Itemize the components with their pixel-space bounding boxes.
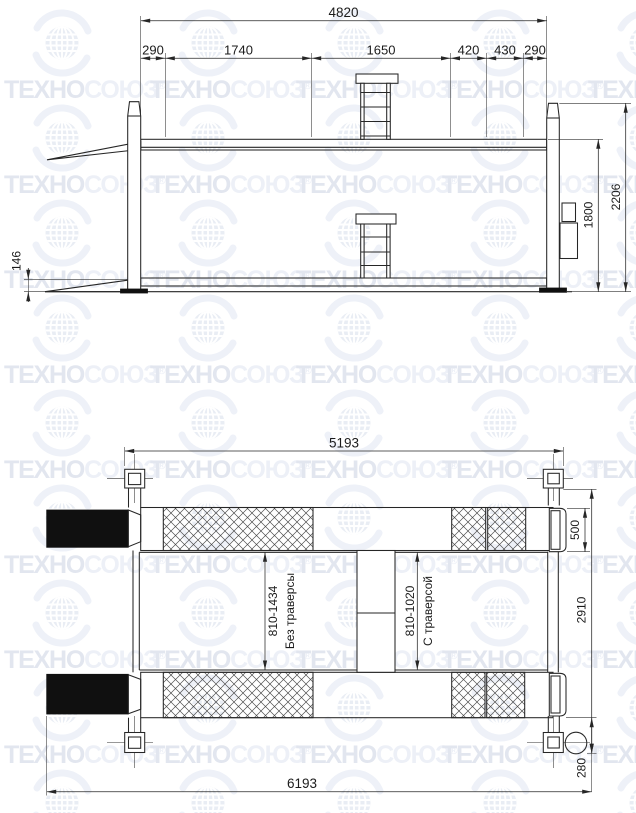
dim-label-overall-height: 2206 <box>609 183 623 210</box>
watermark-brand-text: ТЕХНОСОЮЗ® <box>588 741 636 769</box>
watermark-globe <box>36 203 88 263</box>
watermark-globe <box>328 678 380 738</box>
control-box-lower <box>560 223 578 259</box>
watermark-globe <box>328 298 380 358</box>
jack-raised-cap <box>356 74 398 83</box>
watermark-globe <box>620 108 636 168</box>
technical-drawing: ТЕХНОСОЮЗ®ТЕХНОСОЮЗ®ТЕХНОСОЮЗ®ТЕХНОСОЮЗ®… <box>0 0 636 813</box>
dim-label-seg-2: 1740 <box>224 43 253 58</box>
control-box <box>560 203 578 259</box>
dim-label-seg-3: 1650 <box>367 43 396 58</box>
watermark-globe <box>182 393 234 453</box>
watermark-globe <box>182 203 234 263</box>
watermark-brand-text: ТЕХНОСОЮЗ® <box>4 76 166 104</box>
watermark-globe <box>36 108 88 168</box>
dim-label-range-without-traverse: 810-1434 <box>266 585 280 636</box>
watermark-brand-text: ТЕХНОСОЮЗ® <box>150 741 312 769</box>
watermark-globe <box>328 203 380 263</box>
drive-on-ramp-plan <box>47 674 129 714</box>
dim-label-with-traverse: С траверсой <box>421 576 435 646</box>
ramp-transition <box>128 675 140 714</box>
control-box-upper <box>562 203 576 222</box>
watermark-globe <box>620 488 636 548</box>
tread-plate-hatch <box>488 508 526 551</box>
drawing-page: ТЕХНОСОЮЗ®ТЕХНОСОЮЗ®ТЕХНОСОЮЗ®ТЕХНОСОЮЗ®… <box>0 0 636 813</box>
tread-plate-hatch <box>163 672 313 717</box>
dim-label-total-width: 4820 <box>328 5 358 20</box>
watermark-globe <box>620 298 636 358</box>
side-view: 4820 290 1740 1650 420 430 290 <box>10 5 632 302</box>
watermark-globe <box>328 108 380 168</box>
watermark-globe <box>182 108 234 168</box>
dim-label-overall-length: 6193 <box>287 776 317 791</box>
watermark-brand-text: ТЕХНОСОЮЗ® <box>4 551 166 579</box>
dim-label-seg-1: 290 <box>142 43 164 58</box>
dim-label-runway-width: 500 <box>568 520 582 540</box>
tread-plate-hatch <box>487 672 525 717</box>
watermark-brand-text: ТЕХНОСОЮЗ® <box>150 361 312 389</box>
dim-label-post-span: 5193 <box>329 436 359 451</box>
watermark-globe <box>474 108 526 168</box>
watermark-globe <box>474 298 526 358</box>
watermark-brand-text: ТЕХНОСОЮЗ® <box>588 361 636 389</box>
jack-raised <box>356 74 398 139</box>
watermark-brand-text: ТЕХНОСОЮЗ® <box>150 171 312 199</box>
watermark-brand-text: ТЕХНОСОЮЗ® <box>588 76 636 104</box>
watermark-brand-text: ТЕХНОСОЮЗ® <box>588 551 636 579</box>
watermark-brand-text: ТЕХНОСОЮЗ® <box>296 171 458 199</box>
dim-label-seg-4: 420 <box>458 43 480 58</box>
watermark-brand-text: ТЕХНОСОЮЗ® <box>296 741 458 769</box>
traverse-beam <box>357 551 395 673</box>
dim-label-overall-width: 2910 <box>575 596 589 623</box>
tread-plate-hatch <box>163 508 313 551</box>
watermark-globe <box>620 393 636 453</box>
watermark-globe <box>474 203 526 263</box>
dim-label-without-traverse: Без траверсы <box>283 573 297 649</box>
watermark-globe <box>474 393 526 453</box>
runway-raised <box>47 139 547 160</box>
dim-label-range-with-traverse: 810-1020 <box>403 585 417 636</box>
watermark-globe <box>620 773 636 813</box>
left-post-base-plate <box>121 289 148 293</box>
watermark-brand-text: ТЕХНОСОЮЗ® <box>150 266 312 294</box>
wheel-stop <box>551 676 560 713</box>
watermark-brand-text: ТЕХНОСОЮЗ® <box>442 266 604 294</box>
watermark-globe <box>36 393 88 453</box>
tread-plate-hatch <box>452 672 485 717</box>
drive-on-ramp-plan <box>47 510 129 547</box>
watermark-globe <box>182 583 234 643</box>
watermark-brand-text: ТЕХНОСОЮЗ® <box>588 266 636 294</box>
watermark-globe <box>36 773 88 813</box>
watermark-globe <box>620 583 636 643</box>
watermark-brand-text: ТЕХНОСОЮЗ® <box>442 551 604 579</box>
tread-plate-hatch <box>452 508 486 551</box>
watermark-globe <box>474 773 526 813</box>
watermark-globe <box>620 13 636 73</box>
watermark-globe <box>182 773 234 813</box>
runway-top-plan <box>47 508 566 552</box>
jack-lowered-cap <box>356 214 396 224</box>
watermark-globe <box>620 203 636 263</box>
watermark-brand-text: ТЕХНОСОЮЗ® <box>296 266 458 294</box>
right-post-base-plate <box>540 288 567 292</box>
dim-label-lift-height: 1800 <box>582 201 596 228</box>
watermark-brand-text: ТЕХНОСОЮЗ® <box>296 361 458 389</box>
watermark-brand-text: ТЕХНОСОЮЗ® <box>4 361 166 389</box>
watermark-globe <box>36 583 88 643</box>
watermark-brand-text: ТЕХНОСОЮЗ® <box>588 646 636 674</box>
watermark-brand-text: ТЕХНОСОЮЗ® <box>150 456 312 484</box>
wheel-stop <box>551 511 560 550</box>
watermark-brand-text: ТЕХНОСОЮЗ® <box>296 456 458 484</box>
watermark-globe <box>182 298 234 358</box>
dim-label-seg-5: 430 <box>494 43 516 58</box>
watermark-globe <box>36 13 88 73</box>
watermark-globe <box>620 678 636 738</box>
watermark-brand-text: ТЕХНОСОЮЗ® <box>4 171 166 199</box>
dim-runway-width: 500 <box>567 508 590 551</box>
watermark-brand-text: ТЕХНОСОЮЗ® <box>442 171 604 199</box>
ramp-transition <box>128 510 140 547</box>
watermark-globe <box>328 773 380 813</box>
dim-label-lowered-height: 146 <box>10 251 24 271</box>
dim-label-seg-6: 290 <box>524 43 546 58</box>
watermark-globe <box>36 298 88 358</box>
watermark-brand-text: ТЕХНОСОЮЗ® <box>150 76 312 104</box>
watermark-brand-text: ТЕХНОСОЮЗ® <box>588 456 636 484</box>
watermark-brand-text: ТЕХНОСОЮЗ® <box>442 76 604 104</box>
watermark-globe <box>474 583 526 643</box>
watermark-brand-text: ТЕХНОСОЮЗ® <box>442 361 604 389</box>
dim-label-motor-offset: 280 <box>575 758 589 778</box>
runway-bottom-plan <box>47 672 566 717</box>
watermark-brand-text: ТЕХНОСОЮЗ® <box>442 456 604 484</box>
watermark-globe <box>328 488 380 548</box>
